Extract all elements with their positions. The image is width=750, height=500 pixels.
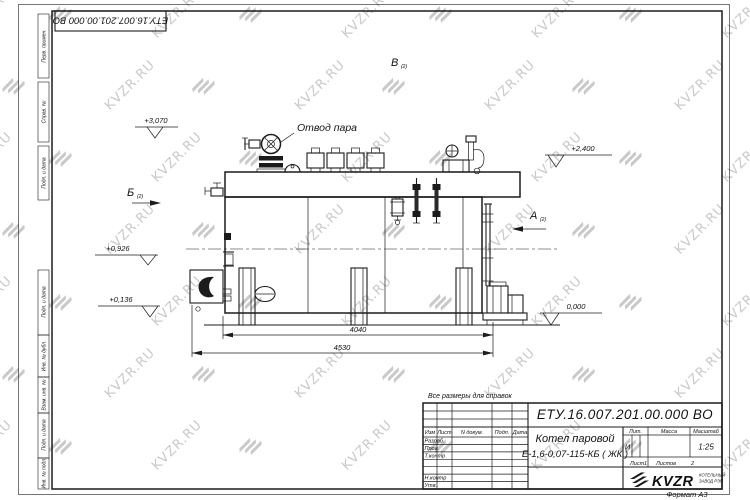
rev-col-ndoc: N докум. <box>461 430 483 436</box>
elevation-zero: 0,000 <box>540 302 602 325</box>
steam-outlet-valve <box>242 135 285 173</box>
lit-header: Лит. <box>628 429 642 435</box>
svg-text:4040: 4040 <box>350 325 368 334</box>
dimension-4040: 4040 <box>223 325 493 337</box>
downcomer-and-pump <box>483 204 528 325</box>
company-subtitle-1: КОТЕЛЬНЫЙ <box>699 473 725 478</box>
margin-cell-label: Инв. № подл. <box>42 457 48 488</box>
boiler-body <box>225 197 482 313</box>
drum-dome <box>285 165 300 173</box>
rotated-doc-number-box: ЕТУ.16.007.201.00.000 ВО <box>52 11 168 31</box>
water-gauge-column <box>390 197 405 225</box>
safety-valves <box>307 148 384 172</box>
sig-nkontr: Н.контр <box>425 476 447 482</box>
scale-header: Масштаб <box>693 429 720 435</box>
margin-cell-label: Подп. и дата <box>42 286 48 318</box>
sheet-value: 1 <box>644 461 647 467</box>
steam-callout-label: Отвод пара <box>297 122 357 134</box>
title-block: Изм Лист N докум. Подп. Дата Разраб. Про… <box>423 403 725 490</box>
steam-callout: Отвод пара <box>281 122 357 142</box>
drum-right-fittings <box>443 136 484 174</box>
margin-cell-label: Справ. № <box>42 100 48 123</box>
scale-value: 1:25 <box>698 443 714 452</box>
svg-text:Б: Б <box>127 187 134 199</box>
margin-cell-label: Перв. примен. <box>42 29 48 62</box>
mass-header: Масса <box>661 429 677 435</box>
reference-note: Все размеры для справок <box>428 392 513 400</box>
svg-text:+2,400: +2,400 <box>571 144 595 153</box>
svg-text:(2): (2) <box>540 217 546 223</box>
view-marks: Б (2) А (2) В (2) <box>127 57 546 232</box>
sig-utv: Утв. <box>424 483 438 489</box>
rev-col-podp: Подп. <box>495 430 510 436</box>
elevation-3070: +3,070 <box>135 116 178 138</box>
margin-cell-label: Подп. и дата <box>42 419 48 451</box>
svg-text:+0,926: +0,926 <box>106 244 130 253</box>
drum-cock <box>205 183 223 196</box>
elevation-0136: +0,136 <box>98 295 160 317</box>
svg-text:А: А <box>529 210 537 222</box>
lit-value: И <box>625 443 631 452</box>
drawing-sheet: KVZR.RUKVZR.RUKVZR.RUKVZR.RUKVZR.RUKVZR.… <box>0 0 750 500</box>
margin-cell-label: Подп. и дата <box>42 157 48 189</box>
rev-col-data: Дата <box>512 430 528 436</box>
burner-unit <box>190 270 223 311</box>
sight-glass <box>255 287 275 302</box>
steam-drum-casing <box>225 172 520 197</box>
company-name: KVZR <box>652 474 694 490</box>
dimension-4530: 4530 <box>192 343 493 355</box>
title-doc-number: ЕТУ.16.007.201.00.000 ВО <box>537 407 713 422</box>
elevation-2400: +2,400 <box>545 144 612 167</box>
boiler-side-view <box>186 135 560 326</box>
rev-col-list: Лист <box>436 430 452 436</box>
sheets-value: 2 <box>690 461 694 467</box>
view-b-mark: Б (2) <box>127 187 161 206</box>
margin-columns: Перв. примен. Справ. № Подп. и дата Подп… <box>38 14 49 489</box>
sheets-label: Листов <box>655 461 676 467</box>
view-v-mark: В (2) <box>391 57 407 70</box>
svg-text:+0,136: +0,136 <box>109 295 133 304</box>
svg-text:(2): (2) <box>401 64 407 70</box>
elevation-0926: +0,926 <box>95 244 158 265</box>
view-a-mark: А (2) <box>512 210 546 232</box>
sig-razrab: Разраб. <box>425 439 445 445</box>
rev-col-izm: Изм <box>425 430 435 436</box>
margin-cell-label: Инв. № дубл. <box>42 341 48 372</box>
rotated-doc-number: ЕТУ.16.007.201.00.000 ВО <box>52 15 168 26</box>
product-name: Котел паровой <box>536 433 615 445</box>
svg-text:0,000: 0,000 <box>567 302 587 311</box>
sig-tkontr: Т.контр <box>425 454 446 460</box>
company-subtitle-2: ЗАВОД РЭП <box>699 479 724 484</box>
format-note: Формат А3 <box>666 490 708 499</box>
margin-cell-label: Взам. инв. № <box>42 379 48 411</box>
svg-text:4530: 4530 <box>334 343 352 352</box>
svg-text:(2): (2) <box>137 194 143 200</box>
sheet-label: Лист <box>629 461 645 467</box>
product-designation: Е-1,6-0,07-115-КБ ( ЖК ) <box>522 449 628 460</box>
svg-text:+3,070: +3,070 <box>144 116 168 125</box>
company-logo: KVZR КОТЕЛЬНЫЙ ЗАВОД РЭП <box>630 473 725 491</box>
level-indicators <box>413 178 441 223</box>
sig-prov: Пров. <box>425 446 440 452</box>
svg-text:В: В <box>391 57 398 69</box>
boiler-drawing-svg: Перв. примен. Справ. № Подп. и дата Подп… <box>0 0 750 500</box>
spring-logo-icon <box>630 473 649 488</box>
